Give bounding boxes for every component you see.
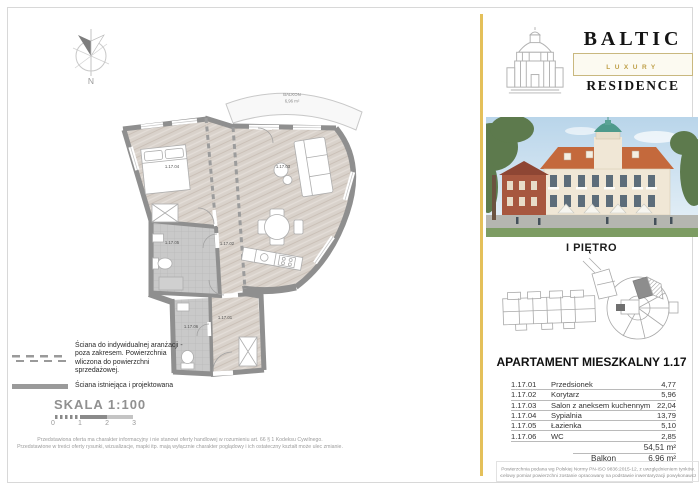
table-row: 1.17.01 Przedsionek 4,77 <box>511 380 676 390</box>
label-bedroom: 1.17.04 <box>165 164 180 169</box>
label-vestibule: 1.17.01 <box>218 315 233 320</box>
wc-sink <box>177 303 189 311</box>
room-code: 1.17.04 <box>511 411 551 420</box>
table-row: 1.17.06 WC 2,85 <box>511 431 676 441</box>
svg-text:Docelowy pomiar powierzchni zo: Docelowy pomiar powierzchni zostanie opr… <box>500 473 696 479</box>
side-table <box>283 176 292 185</box>
bath-sink <box>153 234 164 242</box>
room-name: Łazienka <box>551 421 661 430</box>
scale-tick: 3 <box>132 420 136 427</box>
room-name: Korytarz <box>551 390 661 399</box>
compass-north-label: N <box>88 76 94 86</box>
room-code: 1.17.02 <box>511 390 551 399</box>
svg-text:Przedstawiona oferta ma charak: Przedstawiona oferta ma charakter inform… <box>37 437 322 443</box>
floor-overview-plan <box>495 257 692 345</box>
scale-bar <box>55 415 133 419</box>
label-wc: 1.17.06 <box>184 324 199 329</box>
wardrobe-vestibule <box>239 337 257 366</box>
legend: Ściana do indywidualnej aranżacji - poza… <box>12 342 184 397</box>
building-photo <box>486 117 698 237</box>
room-code: 1.17.05 <box>511 421 551 430</box>
brand-tier: LUXURY <box>606 64 659 71</box>
room-code: 1.17.03 <box>511 401 551 410</box>
logo-building-icon <box>505 26 565 96</box>
floor-title: I PIĘTRO <box>486 242 697 254</box>
room-area: 2,85 <box>661 432 676 441</box>
room-code: 1.17.06 <box>511 432 551 441</box>
legend-dashed-text: Ściana do indywidualnej aranżacji - poza… <box>75 342 183 375</box>
brand-type: RESIDENCE <box>586 78 679 94</box>
room-area: 5,10 <box>661 421 676 430</box>
balcony-label: BALKON <box>283 92 300 97</box>
table-row: 1.17.03 Salon z aneksem kuchennym 22,04 <box>511 401 676 411</box>
room-code: 1.17.01 <box>511 380 551 389</box>
brochure-page: N BALKON 6,96 m² <box>0 0 700 490</box>
brand-name: BALTIC <box>584 28 683 51</box>
table-row: 1.17.02 Korytarz 5,96 <box>511 390 676 400</box>
label-bathroom: 1.17.05 <box>165 240 180 245</box>
svg-text:Przedstawione w treści oferty: Przedstawione w treści oferty rysunki, w… <box>17 444 343 450</box>
total-area: 54,51 m² <box>511 442 676 453</box>
offer-disclaimer: Przedstawiona oferta ma charakter inform… <box>15 435 345 451</box>
table-row: 1.17.05 Łazienka 5,10 <box>511 421 676 431</box>
bath-toilet <box>158 258 172 269</box>
solid-wall-symbol <box>12 384 68 389</box>
label-living: 1.17.03 <box>276 164 291 169</box>
room-area: 4,77 <box>661 380 676 389</box>
room-table: 1.17.01 Przedsionek 4,77 1.17.02 Korytar… <box>511 380 676 464</box>
scale-tick: 0 <box>51 420 55 427</box>
bath-shower <box>159 277 183 290</box>
scale-ticks: 0 1 2 3 <box>51 420 136 427</box>
wardrobe-bedroom <box>152 204 178 222</box>
room-area: 22,04 <box>657 401 676 410</box>
room-name: Przedsionek <box>551 380 661 389</box>
legend-solid-text: Ściana istniejąca i projektowana <box>75 382 183 390</box>
scale-tick: 2 <box>105 420 109 427</box>
luxury-badge: LUXURY <box>573 53 693 76</box>
dashed-wall-symbol <box>12 355 68 362</box>
bed <box>141 145 190 194</box>
gold-separator <box>480 14 483 476</box>
label-corridor: 1.17.02 <box>220 241 235 246</box>
scale-title: SKALA 1:100 <box>54 397 146 412</box>
balcony-area-label: 6,96 m² <box>285 99 300 104</box>
area-disclaimer-box: Powierzchnia podana wg Polskiej Normy PN… <box>496 461 699 482</box>
table-row: 1.17.04 Sypialnia 13,79 <box>511 411 676 421</box>
room-name: WC <box>551 432 661 441</box>
scale-tick: 1 <box>78 420 82 427</box>
room-area: 5,96 <box>661 390 676 399</box>
apartment-title: APARTAMENT MIESZKALNY 1.17 <box>486 355 697 369</box>
room-name: Sypialnia <box>551 411 657 420</box>
room-name: Salon z aneksem kuchennym <box>551 401 657 410</box>
room-area: 13,79 <box>657 411 676 420</box>
logo: BALTIC LUXURY RESIDENCE <box>505 26 697 96</box>
svg-text:Powierzchnia podana wg Polskie: Powierzchnia podana wg Polskiej Normy PN… <box>501 466 695 472</box>
